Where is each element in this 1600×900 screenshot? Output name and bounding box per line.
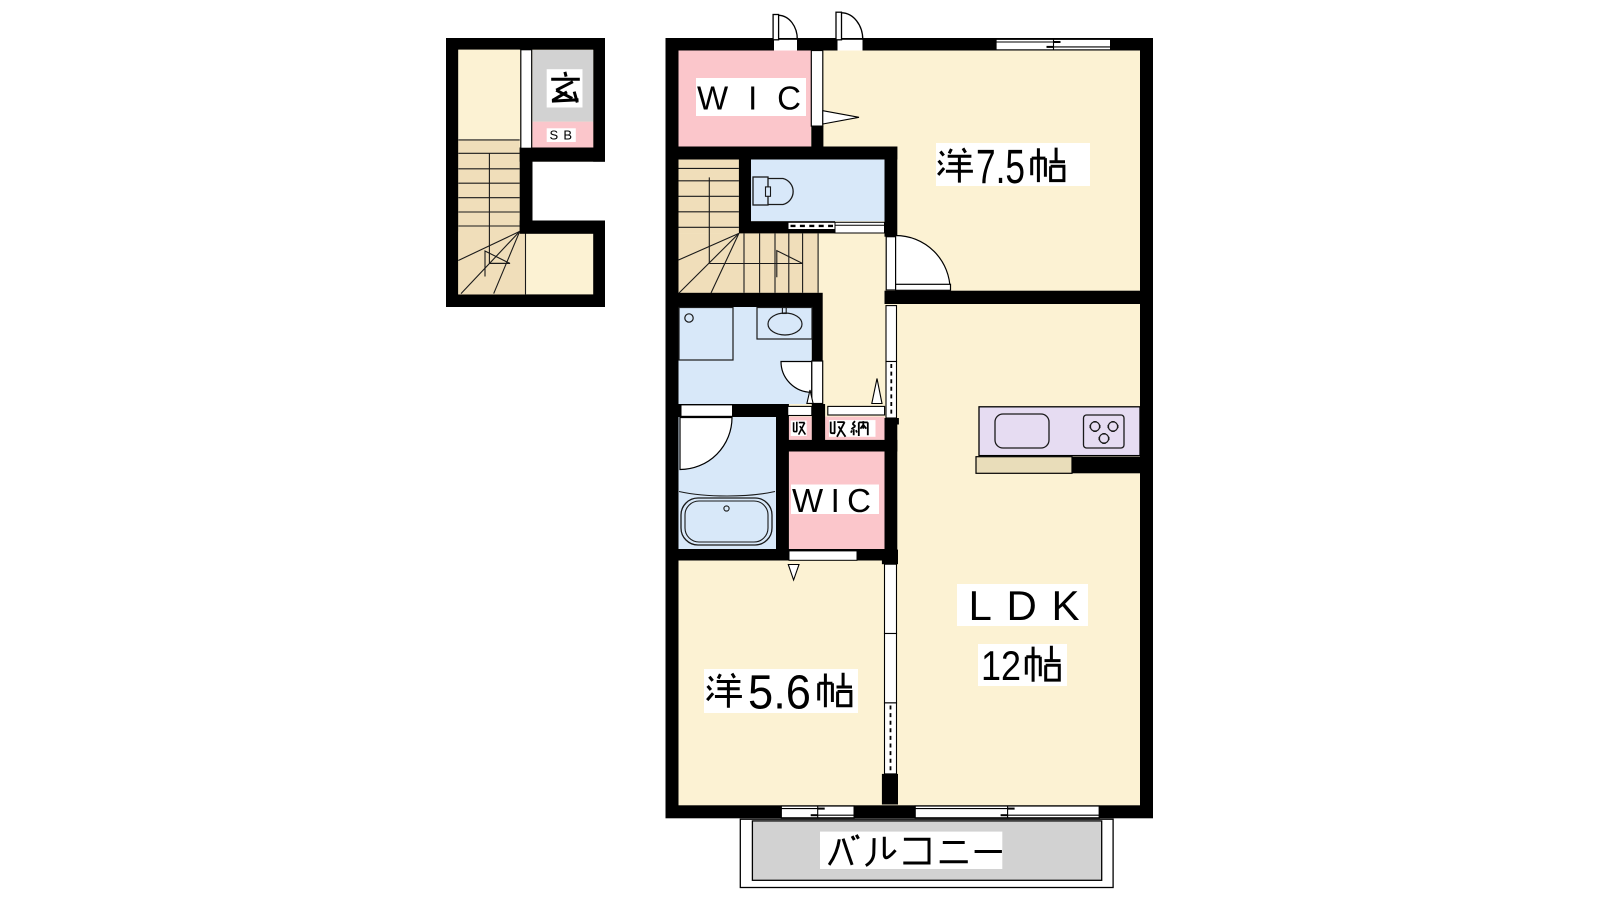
svg-text:WIC: WIC — [697, 80, 801, 117]
svg-text:5.6: 5.6 — [748, 667, 811, 720]
svg-text:12: 12 — [981, 642, 1021, 689]
svg-text:7.5: 7.5 — [976, 141, 1025, 194]
svg-text:LDK: LDK — [969, 582, 1080, 629]
svg-text:WIC: WIC — [792, 482, 871, 519]
